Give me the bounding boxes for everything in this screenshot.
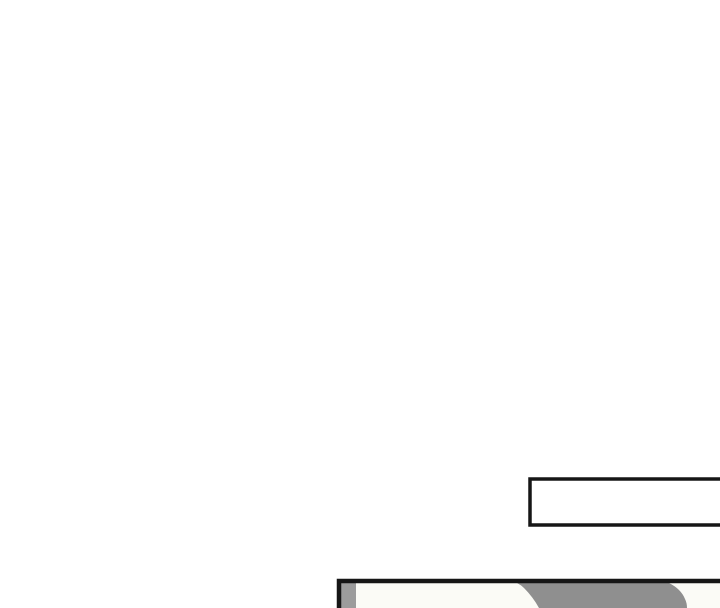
speech-bubble-box xyxy=(530,479,720,525)
bottom-panel xyxy=(339,581,720,608)
comic-page xyxy=(0,0,720,608)
figure-head-silhouette xyxy=(517,583,687,608)
comic-art-canvas xyxy=(0,0,720,608)
speech-bubble xyxy=(530,479,720,525)
figure-left-fragment xyxy=(341,582,356,608)
